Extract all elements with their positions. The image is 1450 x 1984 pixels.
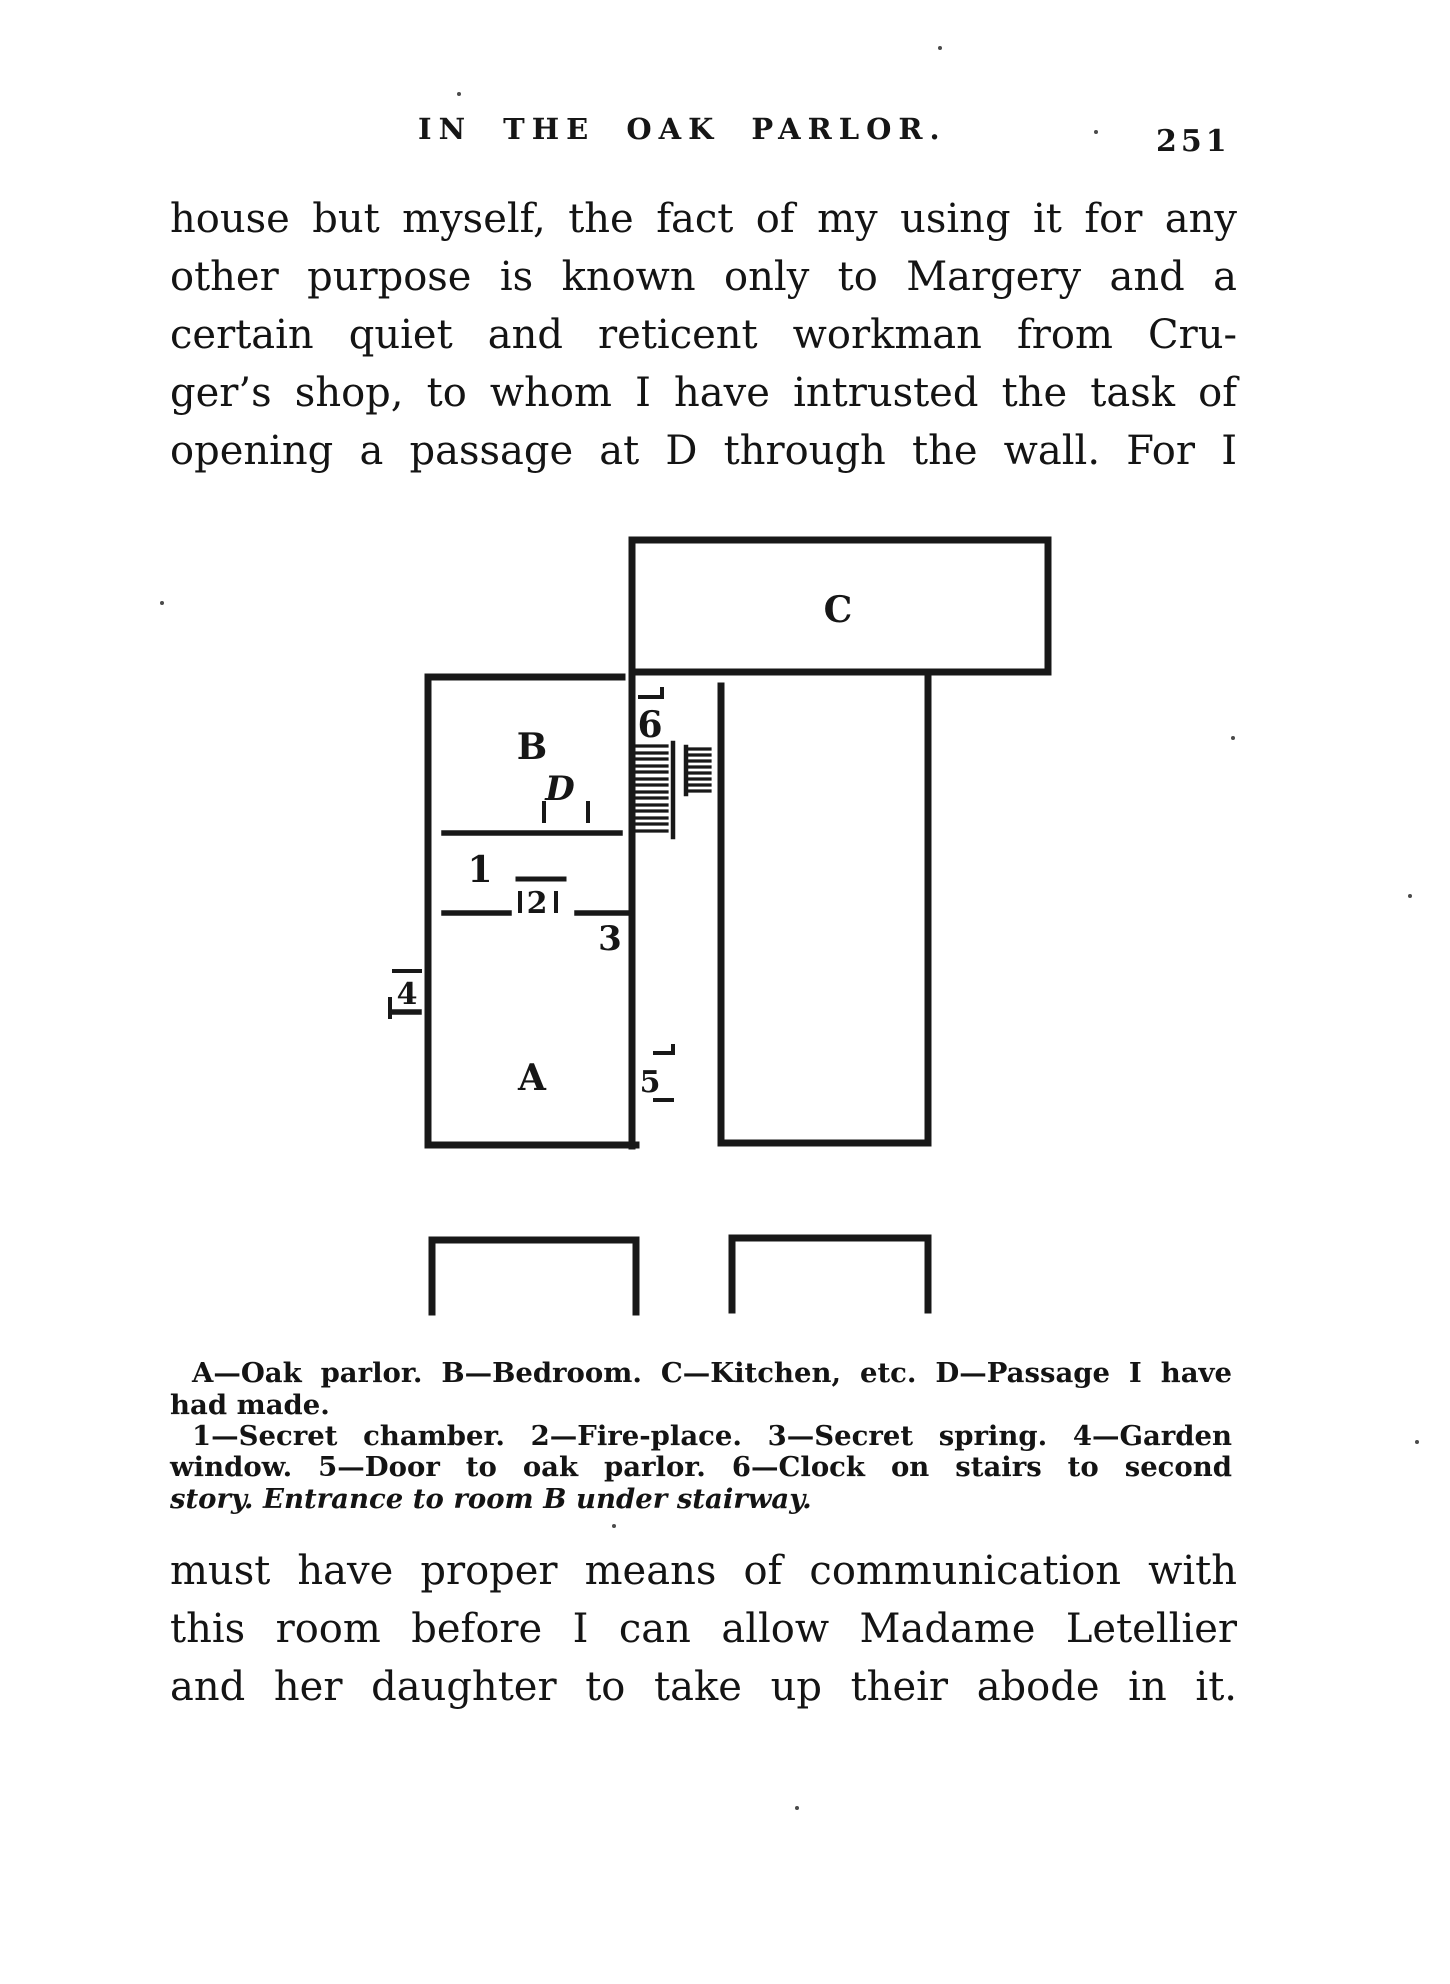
right-room-outline	[721, 672, 928, 1143]
scan-speckle	[795, 1806, 799, 1810]
legend-number-6: 6	[637, 704, 662, 746]
book-page: IN THE OAK PARLOR. 251 house but myself,…	[0, 0, 1450, 1984]
legend-number-2: 2	[527, 886, 548, 921]
room-label-c: C	[824, 589, 853, 631]
caption-line: window. 5—Door to oak parlor. 6—Clock on…	[170, 1452, 1232, 1482]
room-label-a: A	[517, 1057, 547, 1099]
caption-line: story. Entrance to room B under stairway…	[170, 1484, 1232, 1514]
clock-bracket-6	[640, 689, 662, 697]
lower-room-left-outline	[432, 1240, 636, 1312]
scan-speckle	[938, 46, 942, 50]
paragraph-line: must have proper means of communication …	[170, 1548, 1237, 1595]
legend-number-5: 5	[640, 1065, 661, 1100]
paragraph-line: this room before I can allow Madame Lete…	[170, 1606, 1237, 1653]
scan-speckle	[1094, 130, 1098, 134]
scan-speckle	[160, 601, 164, 605]
scan-speckle	[612, 1524, 616, 1528]
stair-hatching-left	[637, 746, 667, 831]
legend-number-3: 3	[598, 919, 622, 959]
legend-number-4: 4	[397, 977, 418, 1012]
lower-room-right-outline	[732, 1238, 928, 1310]
scan-speckle	[1408, 894, 1412, 898]
caption-line: 1—Secret chamber. 2—Fire-place. 3—Secret…	[192, 1421, 1232, 1451]
scan-speckle	[1415, 1440, 1419, 1444]
room-label-b: B	[517, 726, 547, 768]
caption-line: A—Oak parlor. B—Bedroom. C—Kitchen, etc.…	[192, 1358, 1232, 1388]
caption-line: had made.	[170, 1390, 1232, 1420]
scan-speckle	[1231, 736, 1235, 740]
legend-number-1: 1	[467, 849, 492, 891]
passage-label-d: D	[544, 769, 575, 809]
stair-hatching-right	[688, 749, 710, 791]
paragraph-line: and her daughter to take up their abode …	[170, 1664, 1237, 1711]
scan-speckle	[457, 92, 461, 96]
